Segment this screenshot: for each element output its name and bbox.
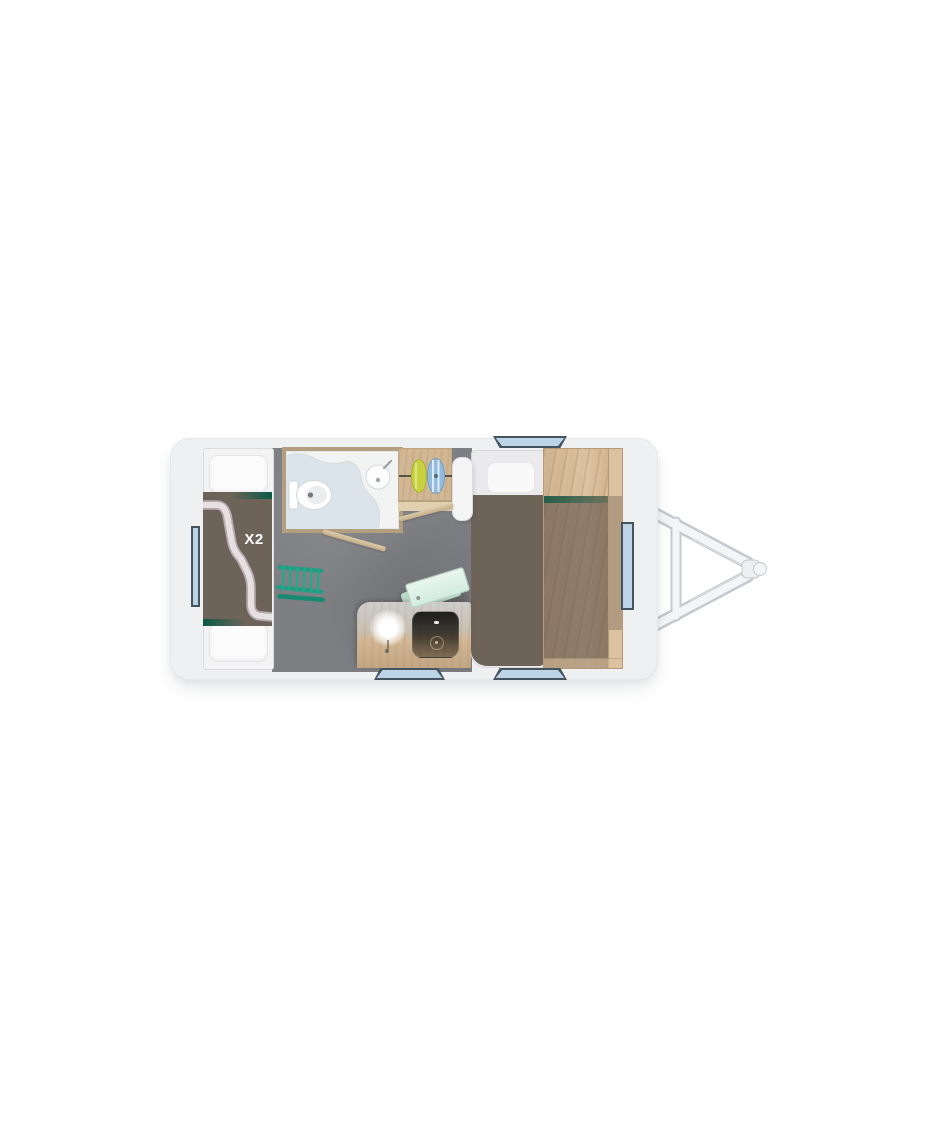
bunk-pillow-bottom — [209, 623, 268, 662]
window-left — [191, 526, 200, 607]
clothes-yellow-icon — [412, 460, 427, 493]
table-fitting — [416, 596, 421, 601]
window-top — [493, 436, 567, 448]
bunk-count-label: X2 — [234, 531, 274, 548]
bed-wood-deck — [543, 448, 623, 669]
ladder-icon — [275, 560, 327, 606]
kitchen-drain — [385, 649, 389, 653]
kitchen-unit — [357, 602, 471, 668]
kitchen-tap — [387, 640, 389, 649]
bed-pillow — [487, 462, 535, 493]
window-glass — [376, 670, 443, 678]
window-glass — [495, 438, 565, 446]
window-right — [621, 522, 634, 610]
hob-knob — [434, 621, 439, 624]
hob-icon — [412, 611, 459, 658]
clothes-blue-icon — [428, 459, 445, 494]
hob-burner-center — [435, 641, 438, 644]
bunk-pillow-top — [209, 455, 268, 494]
entry-door-bottom — [374, 668, 445, 680]
caravan-floorplan: X2 — [0, 0, 937, 1125]
window-bottom — [493, 668, 567, 680]
bed-blanket — [471, 495, 545, 666]
tall-cabinet — [452, 457, 473, 521]
tow-hitch — [640, 495, 780, 645]
bunk-access-ribbon — [203, 492, 272, 626]
toilet-icon — [289, 481, 332, 510]
bed-deck-side-plank — [608, 449, 622, 668]
wardrobe — [398, 448, 452, 501]
bed-deck-foot-plank — [544, 658, 622, 668]
window-glass — [495, 670, 565, 678]
bathroom — [282, 447, 403, 533]
